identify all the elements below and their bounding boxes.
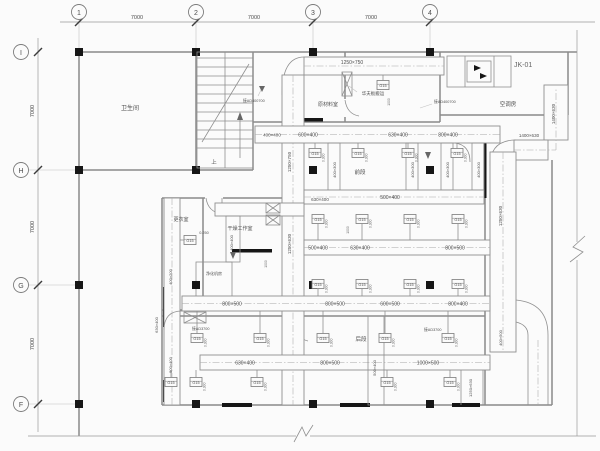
room-label-toilet: 卫生间	[121, 104, 139, 112]
room-label-raw-material: 原材料室	[318, 101, 338, 108]
diffuser-flow: 0.300	[322, 153, 326, 162]
duct-label: 600×500	[380, 302, 400, 308]
duct-label: 400×400	[229, 234, 234, 250]
diffuser-g15: G150.300	[381, 370, 398, 391]
dim-left-1: 7000	[30, 105, 36, 117]
grid-bubble-2: 2	[194, 10, 198, 17]
diffuser-flow: 0.300	[464, 153, 468, 162]
diffuser-tag: G15	[193, 337, 200, 341]
duct-label: 800×500	[320, 361, 340, 367]
diffuser-tag: G15	[444, 337, 451, 341]
ahu-tag: JK-01	[514, 62, 532, 69]
duct-label: 800×500	[445, 246, 465, 252]
diffuser-tag: G15	[406, 283, 413, 287]
diffuser-flow: 0.300	[369, 284, 373, 293]
duct-label: 400×300	[332, 161, 337, 177]
hvac-floor-plan-sheet: 7000 7000 7000 7000 7000 7000	[0, 0, 600, 451]
staircase: 上	[197, 52, 253, 168]
diffuser-g15: G150.300	[352, 143, 369, 162]
duct-label: 400×300	[476, 161, 481, 177]
diffuser-g15: G150.300	[356, 215, 373, 241]
ahu-unit: JK-01	[447, 56, 532, 87]
diffuser-tag: G15	[314, 218, 321, 222]
duct-label: 1250×630	[468, 378, 473, 397]
diffuser-tag: G15	[319, 337, 326, 341]
duct-label: 800×400	[438, 133, 458, 139]
diffuser-flow: 0.300	[465, 219, 469, 228]
diffuser-tag: G15	[311, 152, 318, 156]
diffuser-g15: G150.300	[356, 280, 373, 297]
duct-label: 630×400	[235, 361, 255, 367]
diffuser-g15: G150.300	[312, 280, 329, 297]
diffuser-g15: G15	[180, 236, 196, 245]
room-label-rear: 后段	[355, 335, 367, 343]
grid-bubble-g: G	[18, 283, 23, 290]
diffuser-tag: G15	[186, 239, 193, 243]
diffuser-flow: 0.300	[267, 338, 271, 347]
duct-label: 1400×630	[551, 103, 556, 124]
diffuser-tag: G15	[454, 218, 461, 222]
duct-label: 1000	[264, 260, 268, 268]
room-label-ac-room: 空调房	[500, 100, 517, 108]
stub-label: 接AD400700	[434, 99, 456, 104]
diffuser-flow-alt: 0.250	[199, 231, 209, 235]
diffuser-tag: G15	[358, 283, 365, 287]
stub-label: 接AD400700	[243, 98, 265, 103]
dim-top-1: 7000	[131, 15, 143, 21]
duct-label: 400×400	[263, 133, 281, 138]
diffuser-tag: G15	[358, 218, 365, 222]
duct-label: 800×400	[448, 302, 468, 308]
room-label-front: 前段	[354, 168, 366, 176]
diffuser-flow: 0.300	[394, 382, 398, 391]
grid-bubble-h: H	[18, 168, 23, 175]
diffuser-tag: G15	[192, 381, 199, 385]
duct-label: 630×400	[350, 246, 370, 252]
duct-label: 500×400	[168, 356, 173, 372]
diffuser-tag: G15	[354, 152, 361, 156]
duct-label: 500×400	[308, 246, 328, 252]
duct-label: 500×400	[380, 195, 400, 201]
diffuser-flow: 0.300	[415, 153, 419, 162]
diffuser-tag: G15	[453, 152, 460, 156]
diffuser-g15: G150.300	[452, 215, 469, 241]
dim-left-2: 7000	[30, 221, 36, 233]
duct-label: 630×400	[388, 133, 408, 139]
grid-bubble-f: F	[19, 402, 23, 409]
diffuser-g15: G150.300	[444, 370, 461, 391]
diffuser-tag: G15	[446, 381, 453, 385]
room-label-purification: 净化机房	[206, 270, 222, 276]
dim-top-2: 7000	[248, 15, 260, 21]
diffuser-flow: 0.300	[365, 153, 369, 162]
stub-label: 接AD3700	[192, 326, 210, 331]
grid-bubble-i: I	[20, 50, 22, 57]
duct-label: 1000	[346, 226, 350, 234]
duct-label: 630×400	[311, 197, 329, 202]
diffuser-tag: G15	[406, 218, 413, 222]
duct-label: 1250×630	[287, 233, 292, 254]
diffuser-flow: 0.300	[203, 382, 207, 391]
stub-label: 接AD3700	[424, 327, 442, 332]
duct-label: 400×500	[498, 329, 503, 345]
diffuser-tag: G15	[256, 337, 263, 341]
diffuser-g15: G150.300	[190, 370, 207, 391]
diffuser-tag: G15	[454, 283, 461, 287]
diffuser-flow: 0.300	[417, 284, 421, 293]
grid-bubble-3: 3	[311, 10, 315, 17]
duct-label: 1400×630	[519, 133, 540, 138]
dim-left-3: 7000	[30, 338, 36, 350]
duct-label: 1250×750	[341, 60, 364, 66]
stair-up-label: 上	[211, 158, 217, 166]
diffuser-tag: G15	[404, 152, 411, 156]
room-label-changing: 更衣室	[173, 216, 188, 223]
duct-label: 1250×750	[287, 151, 292, 172]
diffuser-flow: 0.300	[204, 338, 208, 347]
diffuser-tag: G15	[379, 84, 386, 88]
diffuser-flow: 0.300	[264, 382, 268, 391]
diffuser-g15: G150.300	[452, 280, 469, 297]
diffuser-g15: G150.300	[251, 370, 268, 391]
duct-label: 600×400	[298, 133, 318, 139]
grid-bubble-1: 1	[77, 10, 81, 17]
duct-label: 800×500	[222, 302, 242, 308]
diffuser-g15: G150.300	[404, 280, 421, 297]
diffuser-g15: G150.300	[312, 215, 329, 241]
duct-label: 400×300	[410, 161, 415, 177]
diffuser-flow: 0.300	[392, 338, 396, 347]
diffuser-g15: G150.300	[402, 143, 419, 162]
diffuser-tag: G15	[167, 381, 174, 385]
duct-label: 1000×500	[417, 361, 440, 367]
diffuser-tag: G15	[383, 381, 390, 385]
diffuser-flow: 0.300	[325, 219, 329, 228]
diffuser-g15: G150.300	[451, 143, 468, 162]
diffuser-flow: 0.300	[369, 219, 373, 228]
duct-label: 1000	[387, 98, 391, 106]
diffuser-tag: G15	[253, 381, 260, 385]
dim-top-3: 7000	[365, 15, 377, 21]
diffuser-flow: 0.300	[465, 284, 469, 293]
room-label-drying: 干燥工作室	[227, 225, 252, 232]
plan-drawing: 7000 7000 7000 7000 7000 7000	[0, 0, 600, 451]
duct-label: 500×400	[372, 359, 377, 375]
duct-label: 630×400	[154, 316, 159, 332]
diffuser-g15: G150.300	[404, 215, 421, 241]
room-label-waffle: 华夫板搬运	[362, 90, 385, 97]
diffuser-tag: G15	[381, 337, 388, 341]
diffuser-flow: 0.300	[325, 284, 329, 293]
diffuser-flow: 0.300	[455, 338, 459, 347]
diffuser-flow: 0.300	[417, 219, 421, 228]
duct-label: 400×300	[445, 161, 450, 177]
duct-label: 800×500	[325, 302, 345, 308]
diffuser-g15: G150.300	[309, 143, 326, 162]
duct-label: 1250×630	[498, 205, 503, 226]
diffuser-flow: 0.300	[330, 338, 334, 347]
diffuser-g15: G15	[377, 75, 389, 90]
diffuser-flow: 0.300	[457, 382, 461, 391]
diffuser-tag: G15	[314, 283, 321, 287]
grid-bubble-4: 4	[428, 10, 432, 17]
duct-label: 400×200	[168, 268, 173, 284]
